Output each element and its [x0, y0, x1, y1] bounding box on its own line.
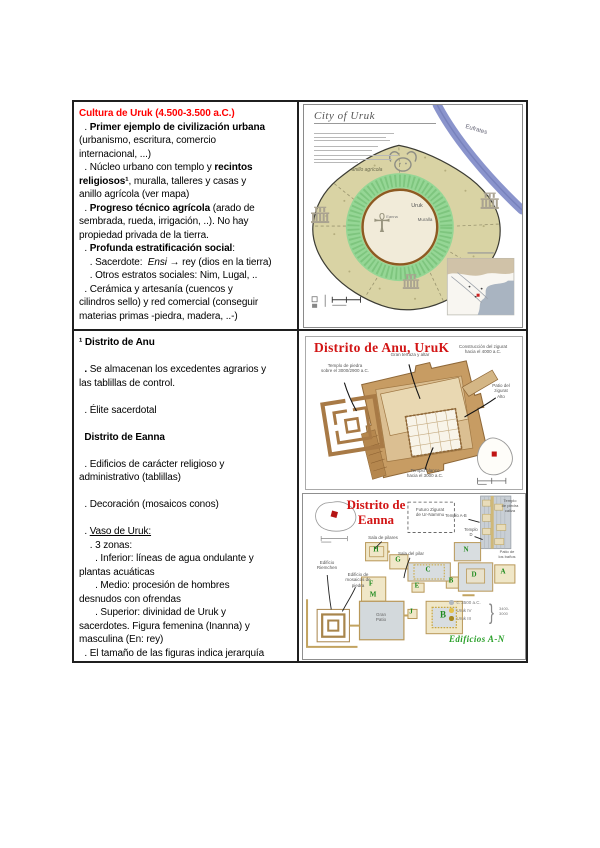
building-letter: B [449, 577, 454, 585]
text-line [79, 512, 295, 526]
white-temple-label: Templo blanco hacia el 3000 a.C. [392, 468, 458, 479]
great-court-label: Gran Patio [365, 612, 397, 623]
locator-inset-map [447, 252, 514, 315]
legend-row: c. 3500 a.C. [449, 600, 481, 605]
text-line: internacional, ...) [79, 148, 295, 162]
building-letter: D [471, 571, 476, 579]
temple-d-label: Templo D [459, 527, 483, 537]
riemchen-building-label: Edificio Riemchen [311, 560, 343, 571]
text-line: . 3 zonas: [79, 539, 295, 553]
text-line: propiedad privada de la tierra. [79, 229, 295, 243]
text-line [79, 485, 295, 499]
legend-date-range: 3400- 3000 [499, 606, 509, 616]
eanna-map-title: Distrito de Eanna [341, 497, 411, 527]
text-line: . Superior: divinidad de Uruk y [79, 606, 295, 620]
temple-ab-label: Templo A-B [441, 513, 471, 518]
caption-line [314, 137, 386, 138]
agricultural-ring-label: anillo agrícola [338, 167, 396, 173]
text-line: . Primer ejemplo de civilización urbana [79, 121, 295, 135]
text-line: masculina (En: rey) [79, 633, 295, 647]
anu-district-figure: Distrito de Anu, UruK Construcción del z… [305, 336, 523, 490]
building-letter: M [370, 591, 377, 599]
text-line: . Inferior: líneas de agua ondulante y [79, 552, 295, 566]
text-line: administrativo (tablillas) [79, 471, 295, 485]
building-letter: J [409, 608, 413, 616]
text-line: . Vaso de Uruk: [79, 525, 295, 539]
legend-row: Uruk III [449, 616, 481, 621]
stone-temple-label: Templo de piedra sobre el 3000/2900 a.C. [312, 363, 378, 374]
mosaic-building-plan [317, 609, 349, 641]
pillars-hall-label: Sala de pilares [359, 535, 407, 540]
legend-label: c. 3500 a.C. [457, 600, 481, 605]
text-line: desnudos con ofrendas [79, 593, 295, 607]
text-line: . El tamaño de las figuras indica jerarq… [79, 647, 295, 661]
caption-line [314, 133, 394, 134]
caption-line [314, 155, 398, 156]
text-line: . Profunda estratificación social: [79, 242, 295, 256]
legend-label: Uruk III [457, 616, 472, 621]
caption-line [314, 162, 358, 163]
ziggurat-construction-label: Construcción del zigurat hacia el 4000 a… [452, 344, 514, 355]
text-line: . Decoración (mosaicos conos) [79, 498, 295, 512]
text-line: materias primas -piedra, madera, ..-) [79, 310, 295, 324]
uruk-culture-text-cell: Cultura de Uruk (4.500-3.500 a.C.) . Pri… [74, 102, 299, 331]
anu-locator-inset [478, 438, 513, 485]
text-line: sacerdotes. Figura femenina (Inanna) y [79, 620, 295, 634]
legend-label: Uruk IV [457, 608, 472, 613]
text-line [79, 444, 295, 458]
legend-dot-olive [449, 616, 454, 621]
text-line [79, 417, 295, 431]
text-line: . Otros estratos sociales: Nim, Lugal, .… [79, 269, 295, 283]
text-line: anillo agrícola (ver mapa) [79, 188, 295, 202]
text-line: las tablillas de control. [79, 377, 295, 391]
districts-text-cell: ¹ Distrito de Anu . Se almacenan los exc… [74, 331, 299, 661]
caption-line [314, 159, 392, 160]
map-scale [312, 295, 360, 308]
text-line [79, 350, 295, 364]
terrace-label: Gran terraza y altar [378, 352, 442, 357]
uruk-label: Uruk [402, 203, 432, 210]
building-letter: N [463, 546, 468, 554]
city-of-uruk-figure: City of Uruk Eufrates anillo agrícola Ur… [303, 104, 523, 328]
legend-dot-gray [449, 600, 454, 605]
text-line: ¹ Distrito de Anu [79, 336, 295, 350]
buildings-a-n-label: Edificios A-N [449, 634, 505, 644]
text-line: cilindros sello) y red comercial (conseg… [79, 296, 295, 310]
building-letter: C [425, 566, 430, 574]
text-line: Cultura de Uruk (4.500-3.500 a.C.) [79, 107, 295, 121]
ziggurat-patio-label: Patio del zigurat Alto [484, 383, 518, 399]
city-map-title: City of Uruk [314, 110, 436, 124]
text-line: . Medio: procesión de hombres [79, 579, 295, 593]
caption-line [314, 146, 378, 147]
building-letter: A [500, 568, 505, 576]
ankh-icon: ☥ [370, 209, 394, 237]
text-line: . Sacerdote: Ensi → rey (dios en la tier… [79, 256, 295, 270]
caption-line [314, 140, 390, 141]
building-letter: E [415, 582, 420, 590]
text-line: . Élite sacerdotal [79, 404, 295, 418]
text-line [79, 390, 295, 404]
city-map-cell: City of Uruk Eufrates anillo agrícola Ur… [299, 102, 526, 331]
document-page: { "document": { "uruk_cell": { "lines": … [0, 0, 600, 848]
eanna-legend: c. 3500 a.C. Uruk IV Uruk III [449, 600, 481, 624]
content-table: Cultura de Uruk (4.500-3.500 a.C.) . Pri… [72, 100, 528, 663]
text-line: Distrito de Eanna [79, 431, 295, 445]
text-line: plantas acuáticas [79, 566, 295, 580]
text-line: . Núcleo urbano con templo y recintos [79, 161, 295, 175]
baths-patio-label: Patio de los baños [493, 550, 521, 560]
text-line: sembrada, rueda, irrigación, ..). No hay [79, 215, 295, 229]
building-letter: H [373, 546, 378, 554]
building-letter: G [395, 556, 400, 564]
eanna-district-figure: Distrito de Eanna Futuro Zigurat de Ur-N… [302, 493, 526, 660]
caption-line [314, 150, 372, 151]
legend-brace-icon: } [489, 600, 494, 626]
district-maps-cell: Distrito de Anu, UruK Construcción del z… [299, 331, 526, 661]
building-letter: B [440, 610, 446, 620]
legend-dot-yellow [449, 608, 454, 613]
text-line: . Cerámica y artesanía (cuencos y [79, 283, 295, 297]
text-line: . Progreso técnico agrícola (arado de [79, 202, 295, 216]
text-line: religiosos¹, muralla, talleres y casas y [79, 175, 295, 189]
limestone-temple-label: Templo de piedra caliza [499, 499, 521, 513]
text-line: . Edificios de carácter religioso y [79, 458, 295, 472]
building-letter: F [369, 580, 373, 588]
legend-row: Uruk IV [449, 608, 481, 613]
wall-label: Muralla [410, 217, 440, 222]
text-line: (urbanismo, escritura, comercio [79, 134, 295, 148]
text-line: . Se almacenan los excedentes agrarios y [79, 363, 295, 377]
anu-map-illustration [306, 337, 522, 489]
